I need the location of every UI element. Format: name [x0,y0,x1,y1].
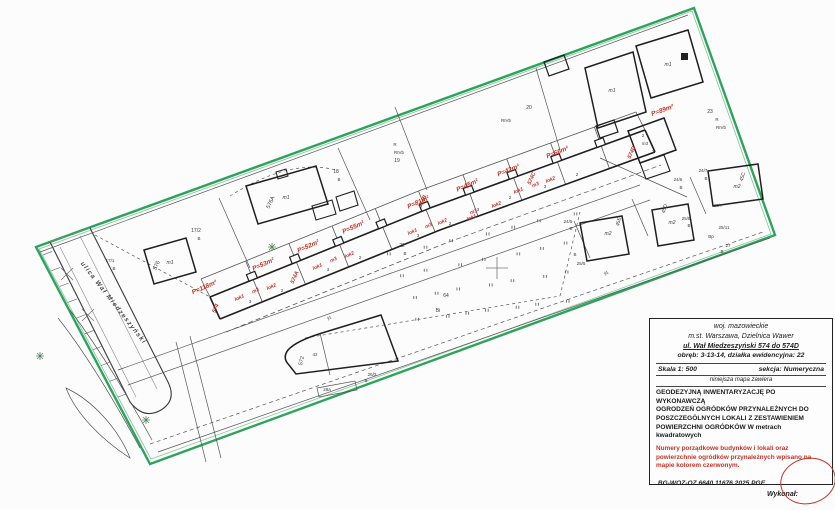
unit-count-label: 2 [576,172,579,177]
grass-tick [414,296,417,299]
landuse-label: B [687,223,690,228]
road-outline [50,228,171,414]
garden-area-label: P=89m² [650,103,675,118]
map-labels: ulica Wał MiedzeszyńskiP=118m²P=53m²P=52… [79,62,747,392]
author-label: Wykonał: [656,490,798,500]
parcel-label: 27 [725,243,731,248]
grass-tick [564,242,567,245]
road [43,228,171,414]
landuse-label: B [337,177,340,182]
unit-label: lok1 [312,262,324,272]
red-note-line: Numery porządkowe budynków i lokali oraz [656,445,826,454]
road-end-line [50,228,90,242]
garden-area-label: P=53m² [251,256,276,272]
unit-label: lok2 [437,217,449,227]
grass-tick [388,252,391,255]
building-number-label: 576 [152,260,161,271]
grass-tick [511,279,514,282]
building-number-label: 576A [266,195,277,209]
parcel-label: 64 [443,293,449,299]
unit-count-label: 3 [477,207,480,212]
parcel-label: 25/5 [577,261,586,266]
grass-tick [566,300,569,303]
grass-tick [446,315,449,318]
building-574d-head [628,118,676,163]
map-subject-text: GEODEZYJNĄ INWENTARYZACJĘ PO WYKONAWCZĄ … [656,389,826,441]
parcel-divider [395,107,427,190]
unit-label: lok1 [513,186,525,195]
grass-tick [486,232,489,235]
landuse-label: Bi [436,308,440,314]
grass-tick [435,292,438,295]
address-label: ul. Wał Miedzeszyński 574 do 574D [656,342,826,352]
scale-section-row: Skala 1: 500 sekcja: Numeryczna [656,363,826,377]
parcel-label: 17/1 [106,258,115,263]
path-label: jd. [602,269,609,276]
landuse-label: B [720,249,723,254]
grass-tick [544,275,547,278]
subject-line: GEODEZYJNĄ INWENTARYZACJĘ PO WYKONAWCZĄ [656,389,826,406]
parcel-label: 20 [526,105,532,111]
outbuilding [336,191,358,211]
voivodeship-label: woj. mazowieckie [656,322,826,332]
grass-tick [490,283,493,286]
parcel-label: 19 [394,158,400,164]
grass-tick [416,318,419,321]
grass-tick [486,309,489,312]
building-number-label: 45D [661,203,669,214]
subject-line: POSZCZEGÓLNYCH LOKALI Z ZESTAWIENIEM [656,415,826,424]
parcel-label: 25/11 [719,225,730,230]
building-type-label: m3 [642,141,649,146]
plot-info-label: obręb: 3-13-14, działka ewidencyjna: 22 [656,351,826,361]
unit-count-label: 3 [249,299,252,304]
city-district-label: m.st. Warszawa, Dzielnica Wawer [656,332,826,342]
unit-count-label: 3 [327,267,330,272]
unit-count-label: 2 [642,133,645,138]
landuse-label: R [715,117,719,122]
grass-tick [574,212,577,215]
parcel-label: 28a [323,387,331,392]
parcel-label: 23 [707,109,713,115]
landuse-label: RIVb [394,150,405,155]
building-annex [596,120,618,138]
grass-tick [512,226,515,229]
tree-symbol [268,243,276,251]
landuse-label: B [112,266,115,271]
slope-curve [58,318,140,448]
landuse-label: B [364,378,367,383]
utility-marker [681,53,688,60]
unit-label: m3 [329,256,338,265]
tree-symbol [142,416,150,424]
building-type-label: m1 [283,195,290,201]
traffic-island-outline [66,388,130,458]
garden-area-label: P=118m² [191,279,219,296]
landuse-label: B [679,185,682,190]
building-number-label: 572 [298,356,306,366]
garden-area-label: P=52m² [296,238,321,254]
parcel-label: 25/9 [682,216,691,221]
landuse-label: RIVb [716,125,727,130]
building-number-label: 42 [312,352,318,357]
landuse-label: R [393,142,397,147]
building-teeth [246,138,605,281]
unit-count-label: 2 [509,195,512,200]
grass-tick [536,303,539,306]
unit-count-label: 2 [281,288,284,293]
building-type-label: m1 [167,260,174,266]
garden-area-label: P=55m² [341,219,366,235]
landuse-label: B [573,252,576,257]
tree-symbol [36,352,44,360]
parcel-label: 24/6 [674,177,683,182]
building-type-label: m2 [734,184,741,190]
parcel-label: 24/7 [699,168,708,173]
building-type-label: m1 [665,62,672,68]
landuse-label: B [403,251,406,256]
grass-tick [459,263,462,266]
parcel-label: 17/2 [191,228,201,234]
grass-tick [541,247,544,250]
grass-tick [466,312,469,315]
long-boundary-line [118,185,640,370]
grass-tick [517,252,520,255]
grass-tick [424,246,427,249]
unit-count-label: 3 [417,233,420,238]
parcel-divider [536,68,560,150]
parcel-label: 22 [399,243,405,249]
subject-line: OGRODZEŃ OGRÓDKÓW PRZYNALEŻNYCH DO [656,406,826,415]
parcel-label: 18 [333,169,339,175]
scale-label: Skala 1: 500 [658,365,697,375]
rear-boundary-line [40,15,688,252]
grass-tick [565,271,568,274]
grass-tick [516,306,519,309]
path-label: jd. [326,315,333,321]
building-internal-line [320,333,330,375]
grass-tick [401,274,404,277]
grass-tick [482,258,485,261]
section-label: sekcja: Numeryczna [759,365,824,375]
parcel-label: 26/3 [368,372,377,377]
building-type-label: m2 [605,231,612,237]
building-number-label: 574A [290,270,301,284]
landuse-label: B [569,226,572,231]
building-type-label: m1 [609,88,616,94]
parcel-label: 24/5 [564,219,573,224]
building-576a-annex [312,200,336,220]
building-type-label: m2 [669,220,676,226]
landuse-label: Bp [708,234,714,239]
grass-tick [457,288,460,291]
landuse-label: RIVb [501,118,512,123]
parcel-divider [219,198,250,268]
building-m1-west [585,52,646,128]
grass-tick [450,239,453,242]
unit-label: lok2 [266,282,278,292]
contains-note: niniejsza mapa zawiera [656,376,826,386]
unit-count-label: 2 [359,255,362,260]
unit-label: lok2 [545,175,557,184]
title-block: woj. mazowieckie m.st. Warszawa, Dzielni… [649,318,833,485]
landuse-label: B [197,236,200,241]
grid-cross [486,257,508,279]
subject-line: POWIERZCHNI OGRÓDKÓW W metrach kwadratow… [656,424,826,441]
grass-tick [424,269,427,272]
unit-label: lok1 [234,293,246,303]
unit-label: lok2 [344,250,356,260]
building-number-label: 45C [739,171,747,182]
parcel-label: 25/7 [714,203,723,208]
parcel-divider [338,148,370,220]
outbuilding [544,55,569,76]
landuse-label: B [704,176,707,181]
unit-label: m3 [424,222,433,231]
